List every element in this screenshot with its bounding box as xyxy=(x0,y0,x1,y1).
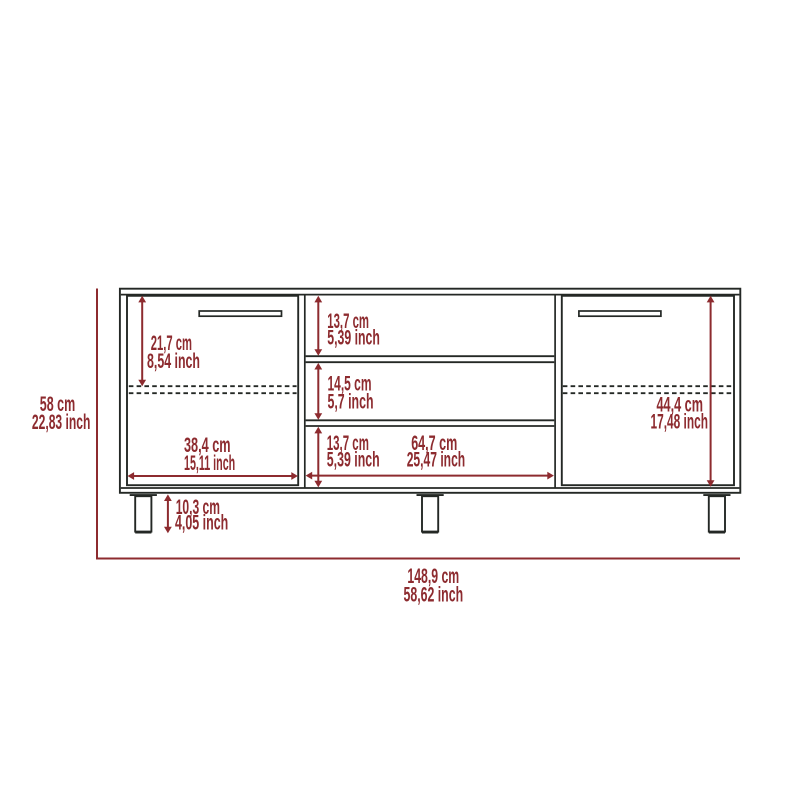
svg-text:17,48 inch: 17,48 inch xyxy=(651,410,709,434)
svg-text:22,83 inch: 22,83 inch xyxy=(32,410,91,434)
svg-text:8,54 inch: 8,54 inch xyxy=(147,349,200,373)
svg-text:5,7 inch: 5,7 inch xyxy=(328,390,374,414)
svg-text:58,62 inch: 58,62 inch xyxy=(404,583,464,607)
svg-text:5,39 inch: 5,39 inch xyxy=(327,448,380,472)
svg-text:5,39 inch: 5,39 inch xyxy=(327,326,380,350)
svg-text:25,47 inch: 25,47 inch xyxy=(407,448,466,472)
svg-text:15,11 inch: 15,11 inch xyxy=(184,451,235,475)
svg-text:4,05 inch: 4,05 inch xyxy=(175,511,228,535)
